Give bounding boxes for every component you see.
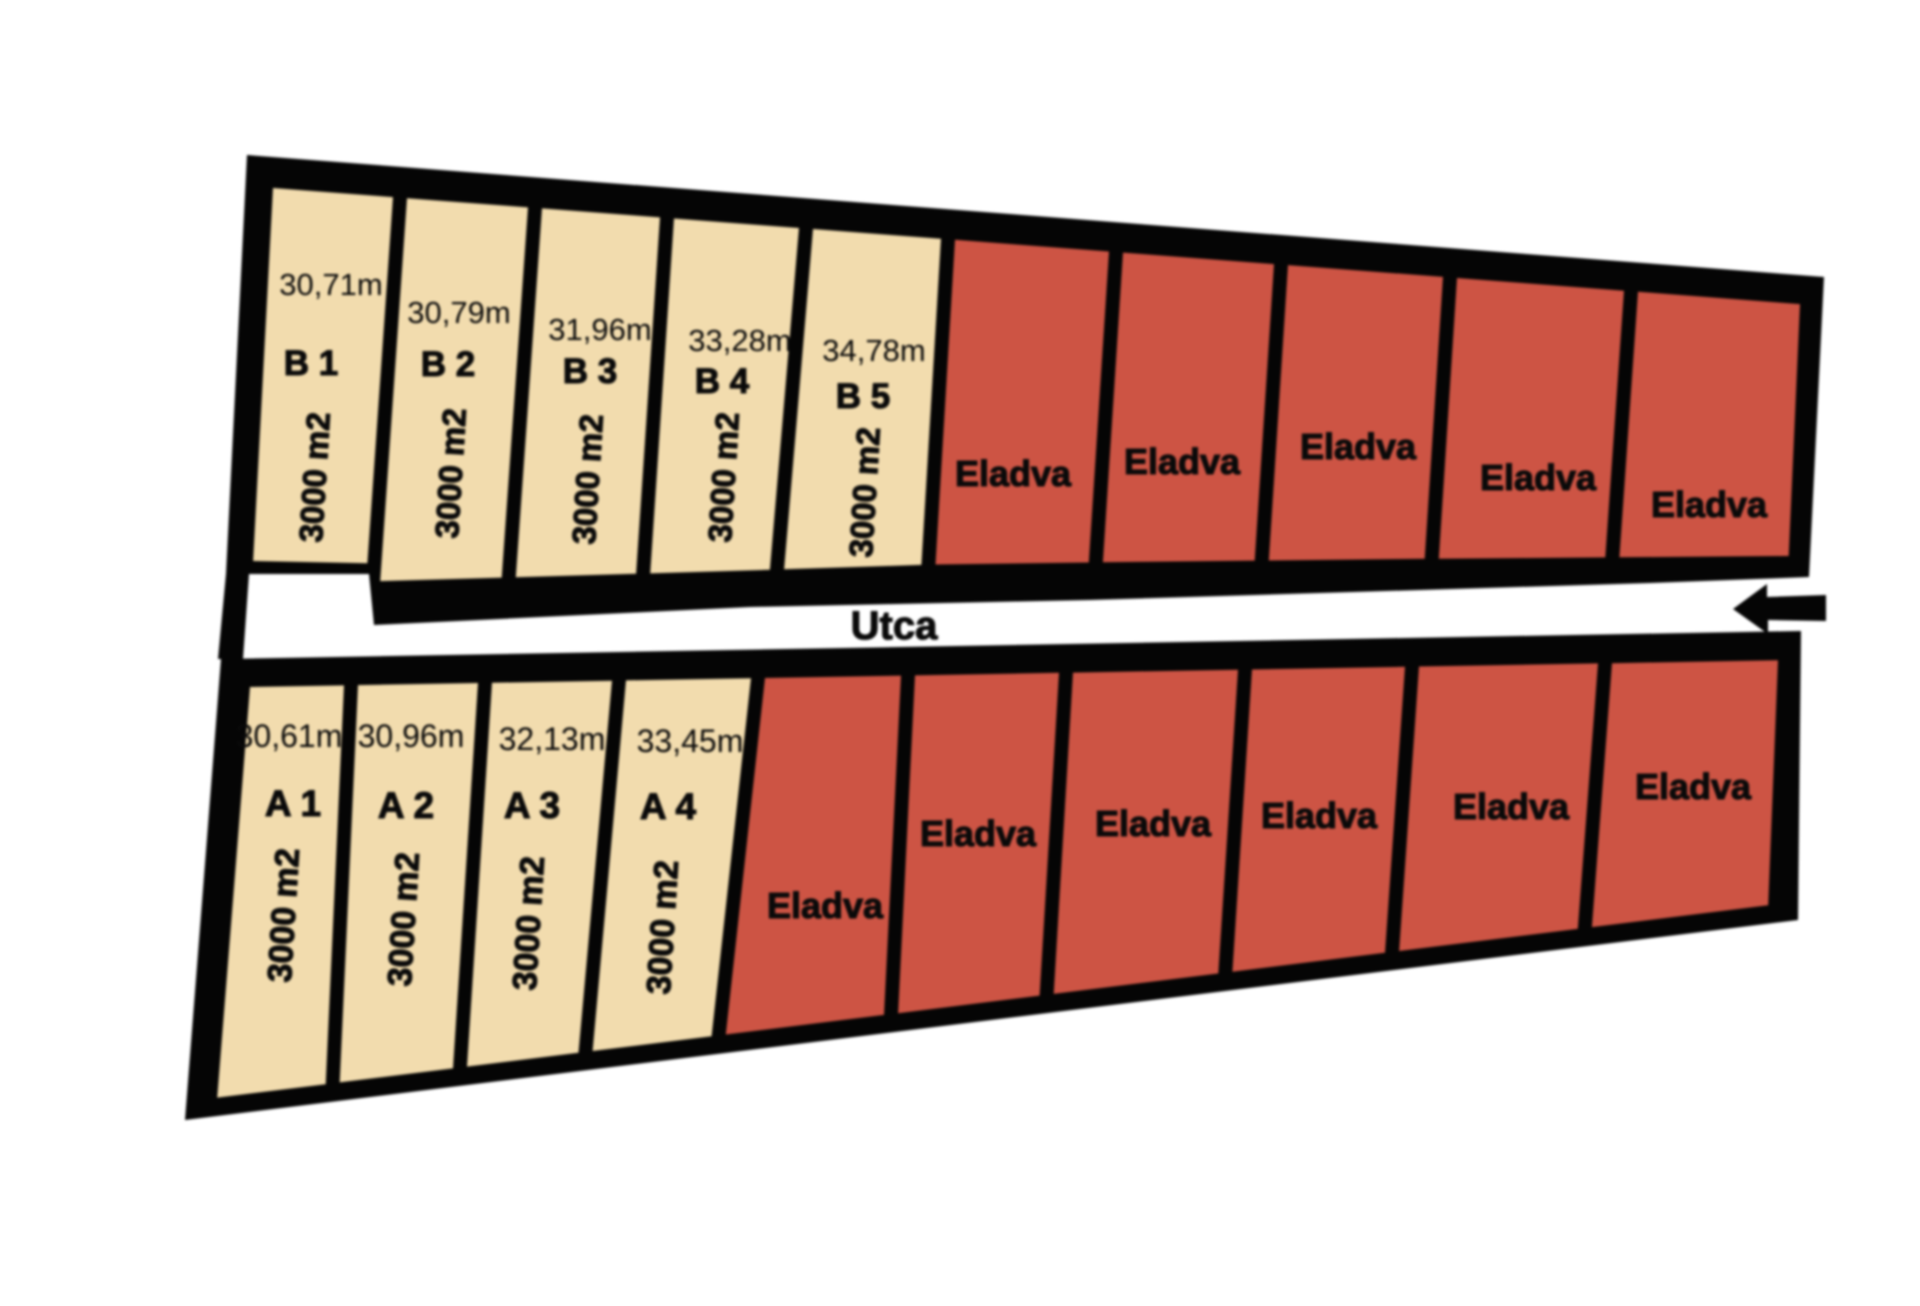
svg-text:31,96m: 31,96m bbox=[548, 312, 651, 347]
svg-text:Eladva: Eladva bbox=[1635, 766, 1752, 807]
svg-text:33,45m: 33,45m bbox=[637, 723, 744, 759]
svg-text:Utca: Utca bbox=[851, 604, 938, 648]
svg-text:A 3: A 3 bbox=[504, 785, 560, 826]
svg-text:30,96m: 30,96m bbox=[358, 718, 465, 754]
svg-text:32,13m: 32,13m bbox=[499, 721, 606, 757]
svg-text:Eladva: Eladva bbox=[1095, 803, 1212, 844]
svg-text:B 4: B 4 bbox=[695, 362, 750, 401]
svg-text:Eladva: Eladva bbox=[1480, 457, 1597, 498]
svg-text:Eladva: Eladva bbox=[1453, 786, 1570, 827]
svg-text:Eladva: Eladva bbox=[767, 885, 884, 926]
svg-text:B 1: B 1 bbox=[284, 344, 338, 383]
svg-text:Eladva: Eladva bbox=[1261, 795, 1378, 836]
svg-text:33,28m: 33,28m bbox=[688, 323, 791, 358]
svg-text:B 3: B 3 bbox=[563, 352, 617, 391]
svg-text:30,61m: 30,61m bbox=[236, 718, 343, 754]
svg-text:A 2: A 2 bbox=[378, 785, 434, 826]
svg-text:B 2: B 2 bbox=[421, 345, 475, 384]
svg-text:B 5: B 5 bbox=[836, 377, 890, 416]
svg-text:30,71m: 30,71m bbox=[279, 267, 382, 302]
svg-text:Eladva: Eladva bbox=[1124, 441, 1241, 482]
svg-text:Eladva: Eladva bbox=[1651, 484, 1768, 525]
svg-text:30,79m: 30,79m bbox=[407, 295, 510, 330]
svg-text:Eladva: Eladva bbox=[1300, 426, 1417, 467]
svg-text:A 1: A 1 bbox=[265, 783, 321, 824]
svg-text:34,78m: 34,78m bbox=[822, 333, 925, 368]
svg-text:Eladva: Eladva bbox=[920, 813, 1037, 854]
svg-text:A 4: A 4 bbox=[640, 786, 697, 827]
svg-text:Eladva: Eladva bbox=[955, 453, 1072, 494]
